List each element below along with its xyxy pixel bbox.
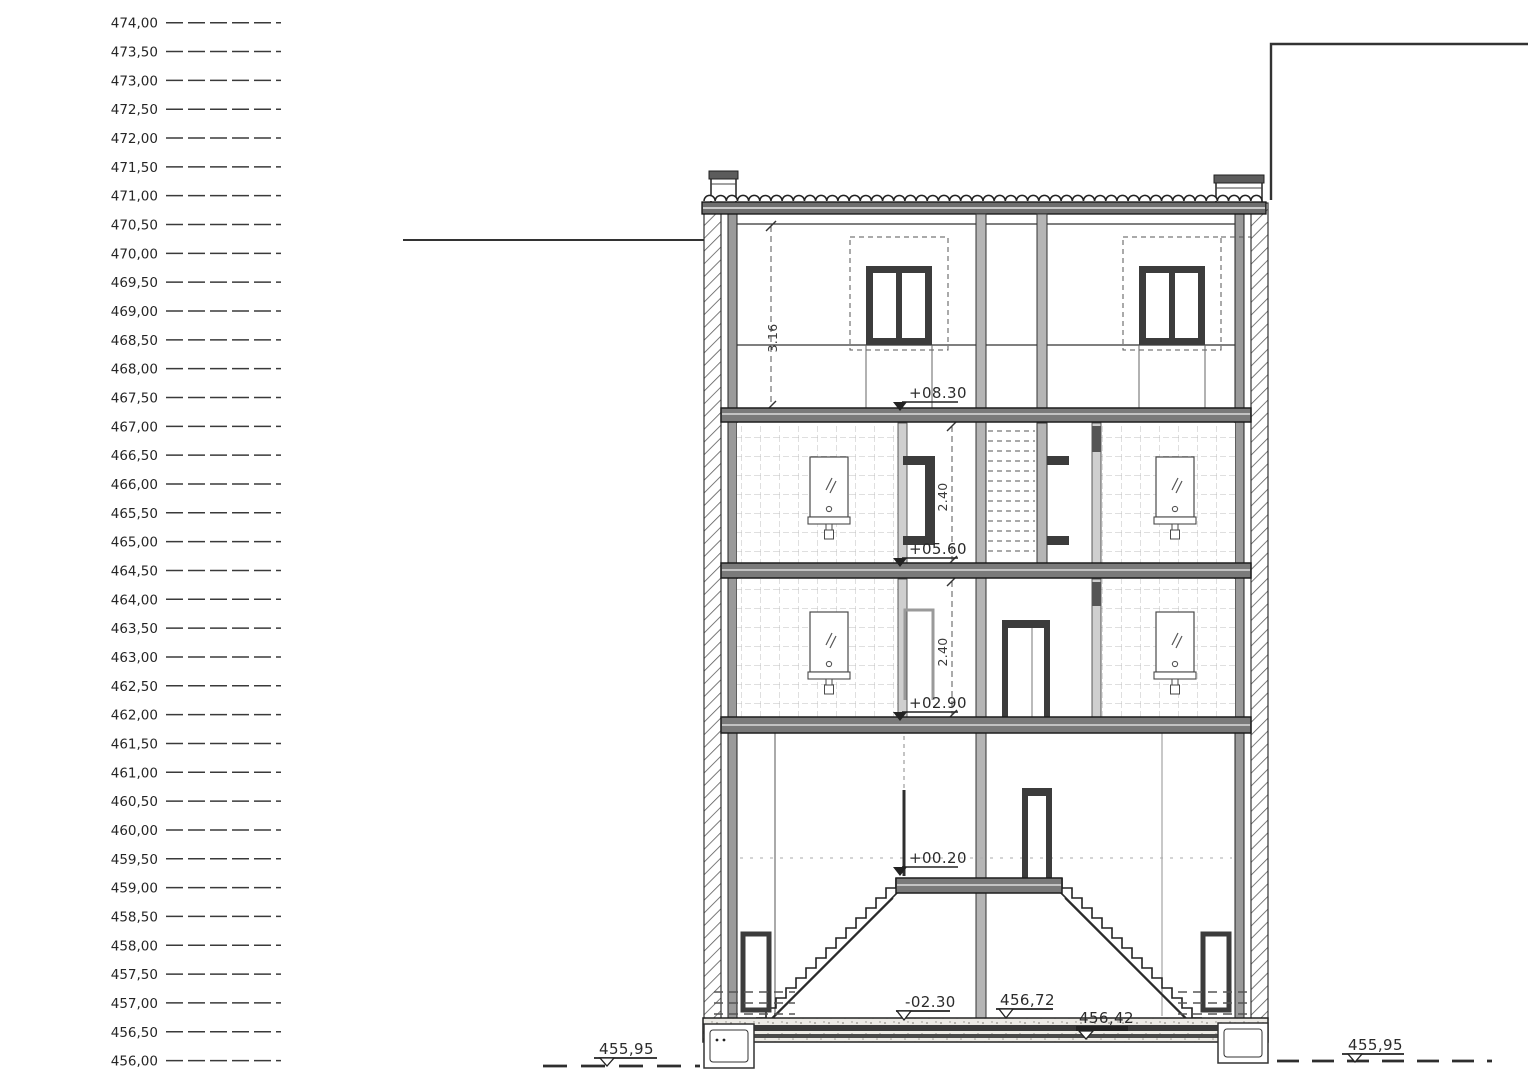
door-lintel	[1002, 620, 1050, 628]
scale-label: 460,50	[111, 794, 158, 810]
boiler-stem	[1172, 524, 1178, 530]
level-mark-basement-absolute: 456,72	[996, 991, 1055, 1018]
exterior-wall-left-inner-leaf	[728, 214, 737, 1020]
basement-door-left	[743, 934, 769, 1010]
level-triangle	[999, 1009, 1013, 1018]
level-mark-basement: -02.30	[896, 993, 956, 1020]
foundation	[703, 1018, 1268, 1068]
boiler-base	[1154, 517, 1196, 524]
roof-tile-row	[704, 195, 1262, 201]
level-label: +02.90	[909, 694, 967, 712]
dimension-attic-height: 3.16	[765, 221, 780, 411]
exterior-wall-right-hatch	[1251, 203, 1268, 1020]
stair-door	[1002, 620, 1050, 717]
scale-label: 467,00	[111, 419, 158, 435]
section-drawing-sheet: 474,00473,50473,00472,50472,00471,50471,…	[0, 0, 1528, 1080]
exterior-wall-left-hatch	[704, 203, 721, 1020]
boiler-body	[1156, 612, 1194, 672]
door-jamb-left	[1002, 620, 1008, 717]
stair-shaft-wall-right-attic	[1037, 214, 1047, 408]
scale-label: 474,00	[111, 16, 158, 32]
boiler-stem	[1172, 679, 1178, 685]
scale-label: 459,50	[111, 852, 158, 868]
level-label: 456,72	[1000, 991, 1055, 1009]
level-mark-grade-left: 455,95	[594, 1040, 657, 1066]
level-label: +05.60	[909, 540, 967, 558]
door-opening-left	[905, 610, 933, 700]
scale-label: 462,00	[111, 708, 158, 724]
chimney-right-cap	[1214, 175, 1264, 183]
scale-label: 472,50	[111, 102, 158, 118]
scale-label: 471,00	[111, 189, 158, 205]
scale-label: 463,00	[111, 650, 158, 666]
scale-label: 463,50	[111, 621, 158, 637]
scale-label: 465,00	[111, 535, 158, 551]
scale-label: 461,50	[111, 736, 158, 752]
scale-label: 473,50	[111, 45, 158, 61]
elevation-scale-axis: 474,00473,50473,00472,50472,00471,50471,…	[111, 16, 281, 1070]
level-mark-grade-right: 455,95	[1342, 1036, 1404, 1062]
scale-label: 469,50	[111, 275, 158, 291]
scale-label: 468,50	[111, 333, 158, 349]
scale-label: 466,50	[111, 448, 158, 464]
partition-wall-right-lintel	[1092, 582, 1101, 606]
stair-flight-right	[1062, 878, 1202, 1018]
door-jamb-left	[1022, 788, 1028, 878]
scale-label: 470,00	[111, 246, 158, 262]
attic-storey: 3.16	[737, 221, 1251, 411]
boiler-body	[810, 612, 848, 672]
attic-window-right-pane2	[1175, 273, 1198, 338]
footing-dot	[723, 1039, 726, 1042]
attic-window-right	[1139, 266, 1205, 408]
attic-window-left-pane1	[873, 273, 896, 338]
door-jamb-right	[1046, 788, 1052, 878]
boiler-base	[808, 672, 850, 679]
scale-label: 459,00	[111, 881, 158, 897]
scale-label: 471,50	[111, 160, 158, 176]
scale-label: 460,00	[111, 823, 158, 839]
dimension-label: 2.40	[935, 637, 950, 666]
scale-label: 467,50	[111, 390, 158, 406]
boiler-valve	[1171, 530, 1180, 539]
door-frame-left	[903, 456, 935, 545]
slab-attic-floor	[721, 408, 1251, 422]
footing-left	[704, 1024, 754, 1068]
boiler-base	[808, 517, 850, 524]
stair-flight-left	[756, 878, 896, 1018]
boiler-valve	[1171, 685, 1180, 694]
adjacent-building-outline	[1271, 44, 1528, 200]
dimension-label: 2.40	[935, 482, 950, 511]
basement-door-right	[1203, 934, 1229, 1010]
door-jamb-right	[1044, 620, 1050, 717]
stair-flight-dashed-treads	[988, 431, 1035, 551]
chimney-left-cap	[709, 171, 738, 179]
attic-window-left-pane2	[902, 273, 925, 338]
scale-label: 472,00	[111, 131, 158, 147]
footing-dot	[716, 1039, 719, 1042]
footing-right-inner	[1224, 1029, 1262, 1057]
stair-shaft-wall-right-floor	[1037, 423, 1047, 563]
level-mark-attic: +08.30	[893, 384, 967, 411]
scale-label: 464,50	[111, 563, 158, 579]
scale-label: 458,50	[111, 909, 158, 925]
attic-window-right-pane1	[1146, 273, 1169, 338]
boiler-body	[810, 457, 848, 517]
scale-label: 466,00	[111, 477, 158, 493]
dimension-label: 3.16	[765, 323, 780, 352]
exterior-wall-right-inner-leaf	[1235, 214, 1244, 1020]
entry-door	[1022, 788, 1052, 878]
building-section-svg: 474,00473,50473,00472,50472,00471,50471,…	[0, 0, 1528, 1080]
stair-shaft-wall-left	[976, 214, 986, 1018]
boiler-body	[1156, 457, 1194, 517]
foundation-slab-band1	[703, 1025, 1268, 1031]
scale-label: 464,00	[111, 592, 158, 608]
level-label: 456,42	[1079, 1009, 1134, 1027]
scale-label: 456,50	[111, 1025, 158, 1041]
boiler-valve	[825, 685, 834, 694]
foundation-slab-band2	[703, 1034, 1268, 1038]
footing-left-inner	[710, 1030, 748, 1062]
footing-right	[1218, 1023, 1268, 1063]
door-jamb	[925, 456, 935, 545]
level-label: -02.30	[905, 993, 956, 1011]
scale-label: 461,00	[111, 765, 158, 781]
boiler-base	[1154, 672, 1196, 679]
scale-label: 457,00	[111, 996, 158, 1012]
scale-label: 473,00	[111, 73, 158, 89]
level-label: +08.30	[909, 384, 967, 402]
scale-label: 469,00	[111, 304, 158, 320]
scale-label: 457,50	[111, 967, 158, 983]
boiler-valve	[825, 530, 834, 539]
scale-label: 456,00	[111, 1054, 158, 1070]
boiler-stem	[826, 679, 832, 685]
level-label: 455,95	[1348, 1036, 1403, 1054]
scale-label: 465,50	[111, 506, 158, 522]
partition-wall-right-lintel	[1092, 426, 1101, 452]
level-label: 455,95	[599, 1040, 654, 1058]
scale-label: 462,50	[111, 679, 158, 695]
scale-label: 458,00	[111, 938, 158, 954]
scale-label: 468,00	[111, 362, 158, 378]
scale-label: 470,50	[111, 218, 158, 234]
level-bar	[1076, 1026, 1128, 1031]
boiler-stem	[826, 524, 832, 530]
level-label: +00.20	[909, 849, 967, 867]
